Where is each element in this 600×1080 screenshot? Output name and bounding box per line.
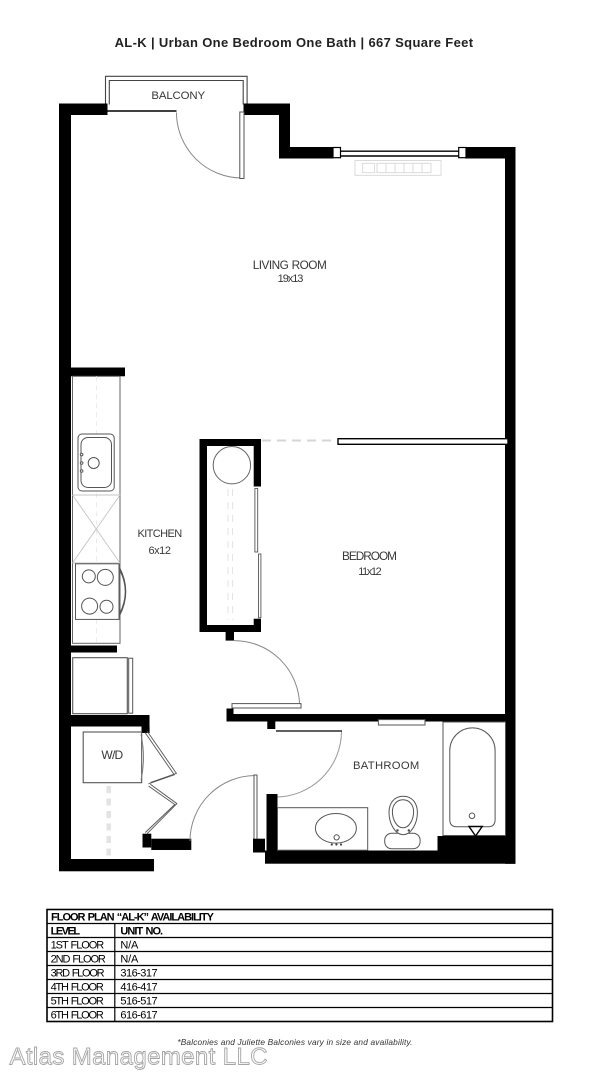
svg-text:FLOOR PLAN “AL-K” AVAILABILITY: FLOOR PLAN “AL-K” AVAILABILITY: [51, 911, 215, 923]
svg-text:516-517: 516-517: [120, 995, 157, 1007]
svg-text:N/A: N/A: [120, 953, 139, 965]
svg-text:4TH FLOOR: 4TH FLOOR: [51, 981, 104, 993]
svg-text:AL-K | Urban One Bedroom One B: AL-K | Urban One Bedroom One Bath | 667 …: [115, 35, 474, 50]
svg-text:Atlas Management LLC: Atlas Management LLC: [10, 1044, 268, 1071]
svg-text:BEDROOM: BEDROOM: [342, 549, 396, 563]
svg-text:5TH FLOOR: 5TH FLOOR: [51, 995, 104, 1007]
svg-text:6TH FLOOR: 6TH FLOOR: [51, 1009, 104, 1021]
svg-text:KITCHEN: KITCHEN: [137, 528, 182, 540]
svg-text:2ND FLOOR: 2ND FLOOR: [51, 953, 106, 965]
svg-text:6x12: 6x12: [148, 545, 170, 557]
svg-text:BALCONY: BALCONY: [151, 90, 205, 102]
svg-text:316-317: 316-317: [120, 967, 157, 979]
svg-text:11x12: 11x12: [358, 566, 381, 578]
svg-text:616-617: 616-617: [120, 1009, 157, 1021]
svg-text:3RD FLOOR: 3RD FLOOR: [51, 967, 105, 979]
svg-text:19x13: 19x13: [278, 273, 304, 285]
svg-text:1ST FLOOR: 1ST FLOOR: [51, 939, 105, 951]
svg-text:LEVEL: LEVEL: [51, 925, 81, 937]
svg-text:416-417: 416-417: [120, 981, 157, 993]
svg-text:LIVING ROOM: LIVING ROOM: [253, 258, 327, 272]
svg-text:BATHROOM: BATHROOM: [353, 760, 420, 772]
svg-text:W/D: W/D: [101, 748, 123, 762]
svg-text:N/A: N/A: [120, 939, 139, 951]
svg-text:UNIT NO.: UNIT NO.: [120, 925, 163, 937]
